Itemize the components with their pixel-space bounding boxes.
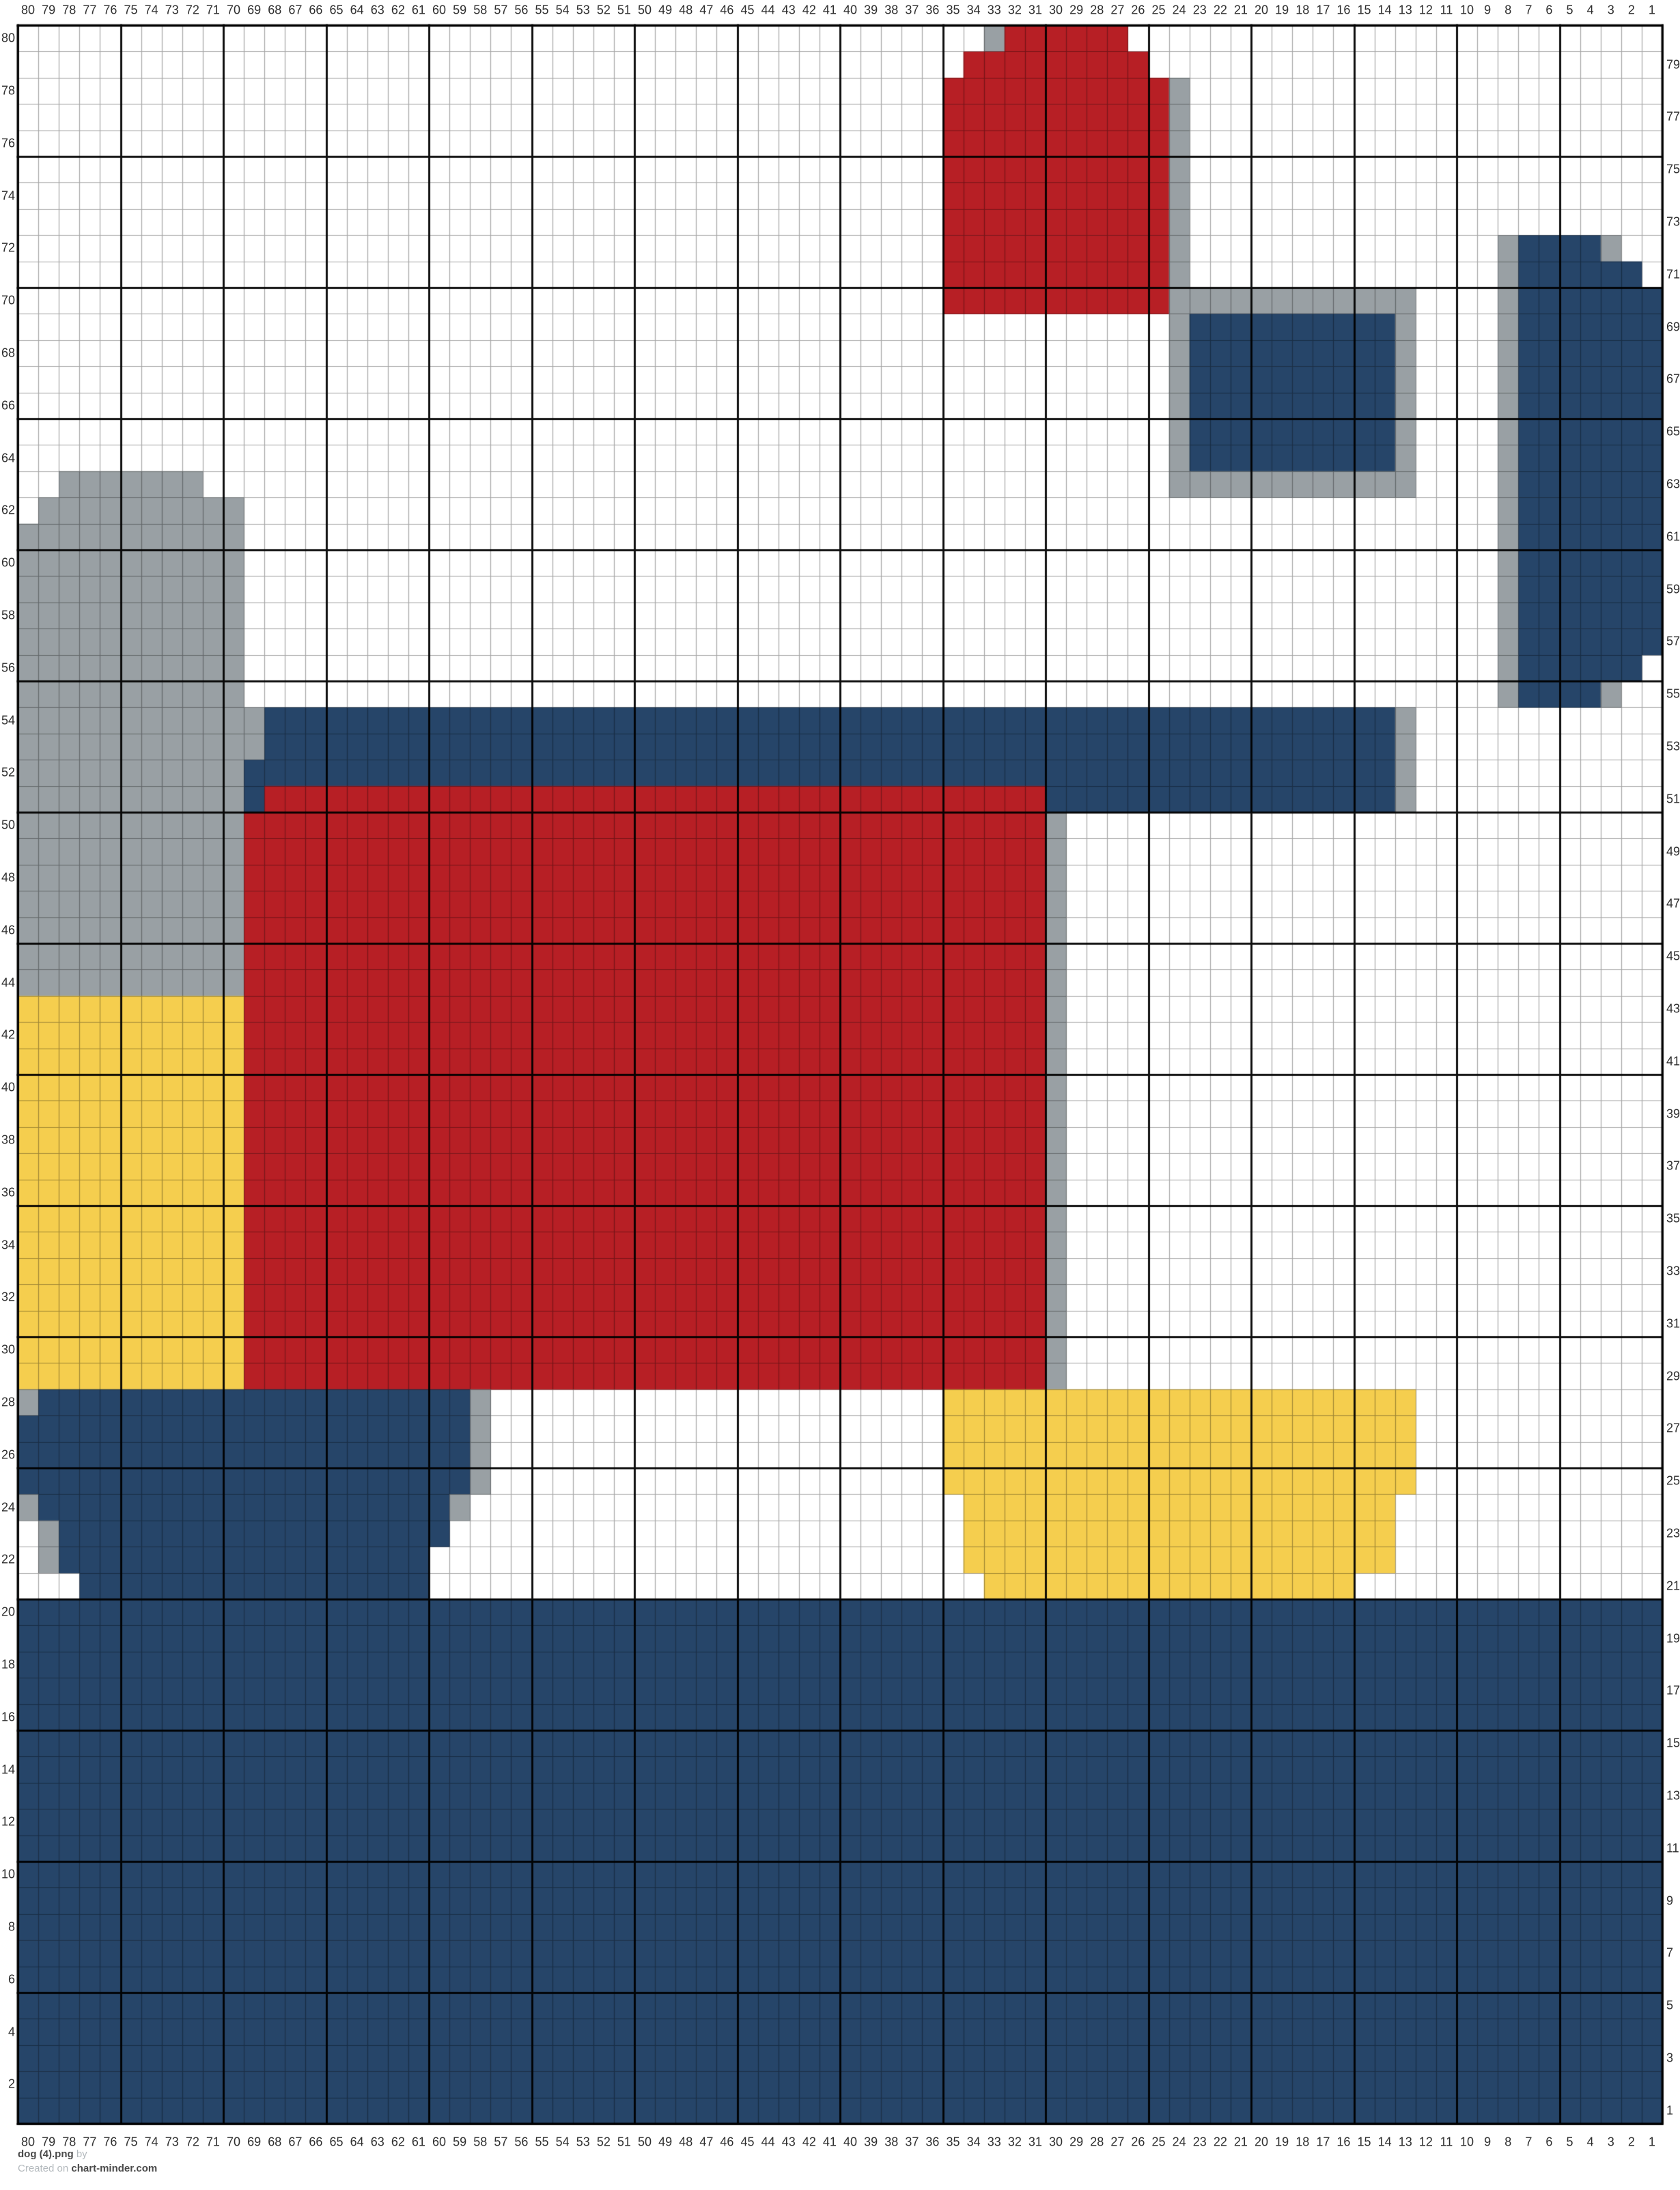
right-row-label: 23	[1666, 1527, 1680, 1541]
top-col-label: 46	[720, 3, 733, 18]
bottom-col-label: 10	[1460, 2135, 1474, 2150]
left-row-label: 22	[1, 1553, 15, 1567]
top-col-label: 22	[1214, 3, 1227, 18]
pattern-grid	[0, 0, 1680, 2190]
bottom-col-label: 68	[268, 2135, 281, 2150]
left-row-label: 60	[1, 556, 15, 570]
bottom-col-label: 16	[1336, 2135, 1350, 2150]
left-row-label: 10	[1, 1868, 15, 1882]
right-row-label: 67	[1666, 372, 1680, 387]
bottom-col-label: 66	[309, 2135, 322, 2150]
right-row-label: 49	[1666, 844, 1680, 859]
right-row-label: 71	[1666, 267, 1680, 281]
top-col-label: 27	[1110, 3, 1124, 18]
right-row-label: 7	[1666, 1946, 1673, 1960]
bottom-col-label: 67	[288, 2135, 302, 2150]
top-col-label: 33	[988, 3, 1001, 18]
top-col-label: 37	[905, 3, 919, 18]
left-row-label: 4	[8, 2025, 15, 2039]
left-row-label: 46	[1, 923, 15, 937]
right-row-label: 43	[1666, 1002, 1680, 1016]
right-row-label: 17	[1666, 1684, 1680, 1698]
left-row-label: 74	[1, 189, 15, 203]
top-col-label: 16	[1336, 3, 1350, 18]
knitting-chart-page: 8079787776757473727170696867666564636261…	[0, 0, 1680, 2190]
bottom-col-label: 39	[864, 2135, 878, 2150]
bottom-col-label: 35	[947, 2135, 960, 2150]
top-col-label: 43	[782, 3, 796, 18]
bottom-col-label: 2	[1628, 2135, 1635, 2150]
top-col-label: 5	[1567, 3, 1573, 18]
right-row-label: 27	[1666, 1422, 1680, 1436]
top-col-label: 47	[699, 3, 713, 18]
right-row-label: 79	[1666, 57, 1680, 72]
top-col-label: 7	[1525, 3, 1532, 18]
bottom-col-label: 43	[782, 2135, 796, 2150]
top-col-label: 25	[1152, 3, 1166, 18]
bottom-col-label: 40	[843, 2135, 857, 2150]
top-col-label: 19	[1275, 3, 1289, 18]
top-col-label: 72	[186, 3, 199, 18]
top-col-label: 59	[453, 3, 466, 18]
top-col-label: 55	[535, 3, 549, 18]
right-row-label: 5	[1666, 1999, 1673, 2013]
bottom-col-label: 25	[1152, 2135, 1166, 2150]
bottom-col-label: 12	[1419, 2135, 1433, 2150]
top-col-label: 74	[145, 3, 158, 18]
left-row-label: 76	[1, 136, 15, 150]
top-col-label: 11	[1440, 3, 1453, 18]
left-row-label: 50	[1, 818, 15, 833]
top-col-label: 62	[391, 3, 405, 18]
top-col-label: 32	[1008, 3, 1022, 18]
right-row-label: 41	[1666, 1054, 1680, 1068]
right-row-label: 13	[1666, 1789, 1680, 1803]
left-row-label: 12	[1, 1815, 15, 1829]
right-row-label: 77	[1666, 110, 1680, 124]
top-col-label: 42	[802, 3, 816, 18]
bottom-col-label: 62	[391, 2135, 405, 2150]
bottom-col-label: 11	[1440, 2135, 1453, 2150]
top-col-label: 68	[268, 3, 281, 18]
left-row-label: 70	[1, 294, 15, 308]
top-col-label: 50	[638, 3, 652, 18]
top-col-label: 36	[925, 3, 939, 18]
left-row-label: 30	[1, 1343, 15, 1357]
left-row-label: 52	[1, 766, 15, 780]
top-col-label: 8	[1504, 3, 1511, 18]
left-row-label: 58	[1, 609, 15, 623]
bottom-col-label: 72	[186, 2135, 199, 2150]
left-row-label: 28	[1, 1396, 15, 1410]
top-col-label: 4	[1587, 3, 1594, 18]
file-name: dog (4).png	[18, 2148, 74, 2160]
bottom-col-label: 33	[988, 2135, 1001, 2150]
right-row-label: 39	[1666, 1107, 1680, 1121]
top-col-label: 63	[371, 3, 384, 18]
top-col-label: 73	[165, 3, 179, 18]
created-on-text: Created on	[18, 2163, 68, 2174]
bottom-col-label: 47	[699, 2135, 713, 2150]
left-row-label: 72	[1, 241, 15, 255]
top-col-label: 51	[617, 3, 631, 18]
bottom-col-label: 32	[1008, 2135, 1022, 2150]
left-row-label: 78	[1, 84, 15, 98]
right-row-label: 61	[1666, 529, 1680, 544]
left-row-label: 6	[8, 1972, 15, 1986]
top-col-label: 3	[1608, 3, 1614, 18]
right-row-label: 37	[1666, 1159, 1680, 1174]
top-col-label: 31	[1028, 3, 1042, 18]
left-row-label: 8	[8, 1920, 15, 1935]
right-row-label: 3	[1666, 2051, 1673, 2066]
footer-line-2: Created on chart-minder.com	[18, 2161, 157, 2176]
top-col-label: 61	[412, 3, 425, 18]
top-col-label: 65	[330, 3, 344, 18]
bottom-col-label: 8	[1504, 2135, 1511, 2150]
top-col-label: 35	[947, 3, 960, 18]
bottom-col-label: 69	[247, 2135, 261, 2150]
bottom-col-label: 73	[165, 2135, 179, 2150]
top-col-label: 6	[1545, 3, 1552, 18]
left-row-label: 66	[1, 398, 15, 413]
bottom-col-label: 60	[432, 2135, 446, 2150]
right-row-label: 21	[1666, 1579, 1680, 1593]
right-row-label: 1	[1666, 2103, 1673, 2118]
left-row-label: 36	[1, 1185, 15, 1200]
right-row-label: 25	[1666, 1474, 1680, 1488]
right-row-label: 73	[1666, 215, 1680, 230]
bottom-col-label: 64	[350, 2135, 364, 2150]
bottom-col-label: 18	[1296, 2135, 1309, 2150]
left-row-label: 40	[1, 1081, 15, 1095]
left-row-label: 44	[1, 975, 15, 990]
top-col-label: 78	[62, 3, 76, 18]
right-row-label: 69	[1666, 320, 1680, 334]
right-row-label: 19	[1666, 1631, 1680, 1646]
bottom-col-label: 9	[1484, 2135, 1491, 2150]
top-col-label: 10	[1460, 3, 1474, 18]
top-col-label: 1	[1649, 3, 1655, 18]
right-row-label: 63	[1666, 477, 1680, 492]
right-row-label: 47	[1666, 897, 1680, 911]
bottom-col-label: 51	[617, 2135, 631, 2150]
right-row-label: 57	[1666, 635, 1680, 649]
right-row-label: 65	[1666, 425, 1680, 439]
bottom-col-label: 1	[1649, 2135, 1655, 2150]
left-row-label: 38	[1, 1133, 15, 1148]
bottom-col-label: 56	[514, 2135, 528, 2150]
bottom-col-label: 53	[576, 2135, 590, 2150]
left-row-label: 18	[1, 1658, 15, 1672]
bottom-col-label: 20	[1255, 2135, 1268, 2150]
left-row-label: 26	[1, 1447, 15, 1462]
bottom-col-label: 7	[1525, 2135, 1532, 2150]
top-col-label: 77	[83, 3, 96, 18]
bottom-col-label: 49	[658, 2135, 672, 2150]
left-row-label: 34	[1, 1238, 15, 1252]
bottom-col-label: 44	[761, 2135, 775, 2150]
left-row-label: 2	[8, 2077, 15, 2092]
bottom-col-label: 57	[494, 2135, 507, 2150]
right-row-label: 75	[1666, 163, 1680, 177]
top-col-label: 41	[823, 3, 837, 18]
bottom-col-label: 31	[1028, 2135, 1042, 2150]
top-col-label: 38	[884, 3, 898, 18]
left-row-label: 56	[1, 661, 15, 675]
bottom-col-label: 42	[802, 2135, 816, 2150]
top-col-label: 13	[1399, 3, 1412, 18]
top-col-label: 57	[494, 3, 507, 18]
top-col-label: 80	[21, 3, 35, 18]
right-row-label: 59	[1666, 582, 1680, 596]
top-col-label: 52	[597, 3, 611, 18]
bottom-col-label: 71	[206, 2135, 220, 2150]
left-row-label: 48	[1, 871, 15, 885]
right-row-label: 55	[1666, 687, 1680, 702]
left-row-label: 64	[1, 451, 15, 465]
top-col-label: 17	[1316, 3, 1330, 18]
top-col-label: 2	[1628, 3, 1635, 18]
top-col-label: 64	[350, 3, 364, 18]
top-col-label: 76	[103, 3, 117, 18]
bottom-col-label: 6	[1545, 2135, 1552, 2150]
bottom-col-label: 52	[597, 2135, 611, 2150]
left-row-label: 32	[1, 1290, 15, 1305]
bottom-col-label: 63	[371, 2135, 384, 2150]
top-col-label: 12	[1419, 3, 1433, 18]
top-col-label: 71	[206, 3, 220, 18]
bottom-col-label: 3	[1608, 2135, 1614, 2150]
bottom-col-label: 4	[1587, 2135, 1594, 2150]
right-row-label: 29	[1666, 1369, 1680, 1383]
top-col-label: 70	[227, 3, 240, 18]
bottom-col-label: 38	[884, 2135, 898, 2150]
footer: dog (4).png by Created on chart-minder.c…	[18, 2147, 157, 2176]
right-row-label: 35	[1666, 1212, 1680, 1226]
top-col-label: 56	[514, 3, 528, 18]
footer-line-1: dog (4).png by	[18, 2147, 157, 2161]
right-row-label: 15	[1666, 1736, 1680, 1751]
top-col-label: 24	[1173, 3, 1186, 18]
bottom-col-label: 5	[1567, 2135, 1573, 2150]
bottom-col-label: 48	[679, 2135, 692, 2150]
top-col-label: 45	[741, 3, 755, 18]
bottom-col-label: 65	[330, 2135, 344, 2150]
bottom-col-label: 34	[967, 2135, 981, 2150]
top-col-label: 18	[1296, 3, 1309, 18]
top-col-label: 48	[679, 3, 692, 18]
bottom-col-label: 70	[227, 2135, 240, 2150]
bottom-col-label: 41	[823, 2135, 837, 2150]
byline-text: by	[76, 2148, 87, 2160]
site-name: chart-minder.com	[71, 2163, 157, 2174]
right-row-label: 45	[1666, 950, 1680, 964]
bottom-col-label: 21	[1234, 2135, 1248, 2150]
bottom-col-label: 13	[1399, 2135, 1412, 2150]
bottom-col-label: 55	[535, 2135, 549, 2150]
left-row-label: 14	[1, 1762, 15, 1777]
top-col-label: 21	[1234, 3, 1248, 18]
top-col-label: 26	[1131, 3, 1145, 18]
top-col-label: 67	[288, 3, 302, 18]
top-col-label: 23	[1193, 3, 1207, 18]
bottom-col-label: 26	[1131, 2135, 1145, 2150]
bottom-col-label: 22	[1214, 2135, 1227, 2150]
bottom-col-label: 23	[1193, 2135, 1207, 2150]
bottom-col-label: 59	[453, 2135, 466, 2150]
bottom-col-label: 50	[638, 2135, 652, 2150]
right-row-label: 31	[1666, 1316, 1680, 1331]
left-row-label: 24	[1, 1500, 15, 1514]
top-col-label: 69	[247, 3, 261, 18]
left-row-label: 68	[1, 346, 15, 361]
top-col-label: 15	[1358, 3, 1371, 18]
top-col-label: 39	[864, 3, 878, 18]
bottom-col-label: 15	[1358, 2135, 1371, 2150]
top-col-label: 49	[658, 3, 672, 18]
bottom-col-label: 54	[556, 2135, 570, 2150]
right-row-label: 33	[1666, 1264, 1680, 1279]
bottom-col-label: 36	[925, 2135, 939, 2150]
bottom-col-label: 24	[1173, 2135, 1186, 2150]
top-col-label: 54	[556, 3, 570, 18]
top-col-label: 60	[432, 3, 446, 18]
bottom-col-label: 27	[1110, 2135, 1124, 2150]
bottom-col-label: 14	[1378, 2135, 1392, 2150]
left-row-label: 42	[1, 1028, 15, 1042]
top-col-label: 20	[1255, 3, 1268, 18]
left-row-label: 80	[1, 31, 15, 46]
top-col-label: 79	[42, 3, 55, 18]
bottom-col-label: 37	[905, 2135, 919, 2150]
bottom-col-label: 17	[1316, 2135, 1330, 2150]
bottom-col-label: 19	[1275, 2135, 1289, 2150]
top-col-label: 28	[1090, 3, 1104, 18]
left-row-label: 16	[1, 1710, 15, 1724]
bottom-col-label: 29	[1069, 2135, 1083, 2150]
top-col-label: 29	[1069, 3, 1083, 18]
bottom-col-label: 46	[720, 2135, 733, 2150]
top-col-label: 14	[1378, 3, 1392, 18]
left-row-label: 20	[1, 1605, 15, 1620]
top-col-label: 44	[761, 3, 775, 18]
top-col-label: 58	[473, 3, 487, 18]
top-col-label: 9	[1484, 3, 1491, 18]
top-col-label: 53	[576, 3, 590, 18]
top-col-label: 75	[124, 3, 138, 18]
top-col-label: 30	[1049, 3, 1063, 18]
left-row-label: 62	[1, 503, 15, 518]
top-col-label: 66	[309, 3, 322, 18]
bottom-col-label: 45	[741, 2135, 755, 2150]
right-row-label: 11	[1666, 1841, 1679, 1855]
right-row-label: 51	[1666, 792, 1680, 806]
bottom-col-label: 28	[1090, 2135, 1104, 2150]
bottom-col-label: 61	[412, 2135, 425, 2150]
top-col-label: 34	[967, 3, 981, 18]
bottom-col-label: 30	[1049, 2135, 1063, 2150]
right-row-label: 53	[1666, 740, 1680, 754]
top-col-label: 40	[843, 3, 857, 18]
bottom-col-label: 58	[473, 2135, 487, 2150]
left-row-label: 54	[1, 713, 15, 727]
right-row-label: 9	[1666, 1894, 1673, 1908]
